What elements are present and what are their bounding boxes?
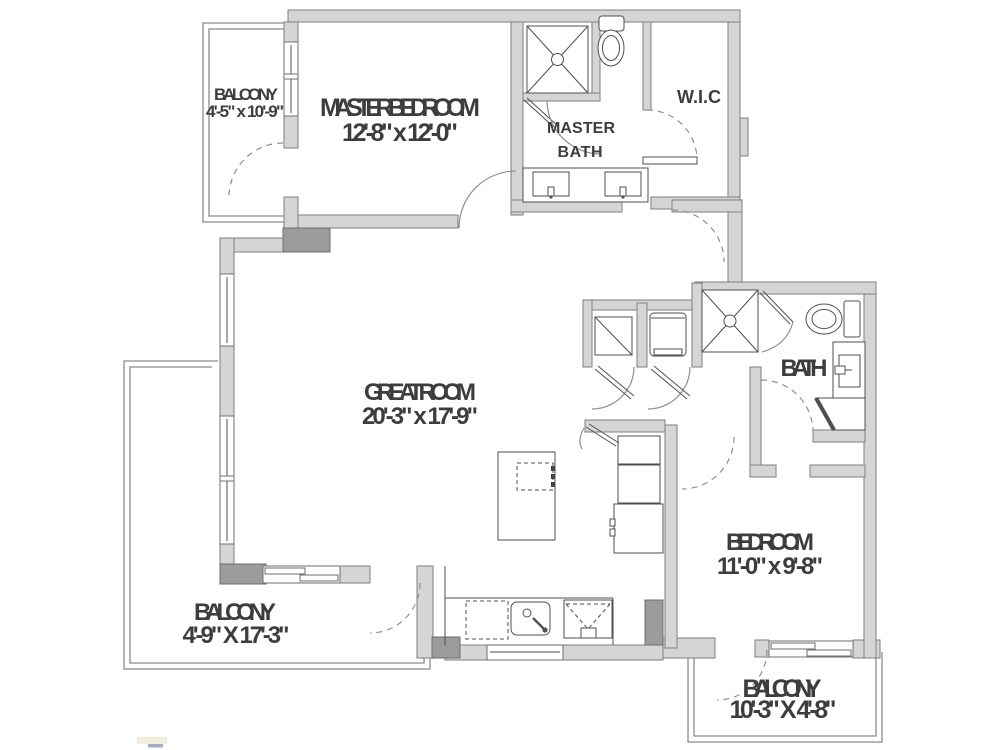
bath-shower-icon [702, 290, 758, 352]
bath-shower-door [760, 291, 793, 352]
bath-toilet-icon [806, 301, 860, 337]
great-room-label: GREAT ROOM [364, 379, 476, 406]
wic-door-swing [647, 110, 697, 160]
master-bedroom-dims: 12'-8" x 12'-0" [342, 119, 458, 147]
kitchen-sink-icon [511, 602, 550, 635]
bath-door-swing [761, 380, 813, 432]
entry-door-swing [672, 210, 724, 262]
great-room-slider-window [263, 566, 340, 583]
water-heater-icon [595, 317, 632, 355]
double-vanity-icon [523, 168, 648, 202]
master-bath-label-line1: MASTER [547, 120, 615, 137]
bath-label: BATH [781, 355, 828, 382]
bath-corner-counter [816, 398, 865, 430]
bedroom-label: BEDROOM [726, 529, 814, 556]
master-bedroom-balcony-window [284, 42, 298, 116]
balcony-top-left-outline [203, 23, 293, 222]
master-bath-label-line2: BATH [558, 144, 603, 161]
wic-label: W.I.C [677, 87, 721, 107]
range-icon [564, 600, 612, 638]
bedroom-dims: 11'-0" x 9'-8" [717, 553, 823, 580]
bedroom-door-swing [682, 437, 734, 489]
bedroom-slider-window [769, 641, 853, 657]
watermark [137, 737, 167, 748]
wic-partition [643, 157, 697, 164]
great-room-window-lower [220, 416, 234, 544]
pantry-cabinets [618, 436, 660, 503]
master-bath-fixtures [523, 16, 648, 202]
dishwasher-icon [466, 601, 508, 639]
great-room-window-upper [220, 274, 234, 346]
toilet-icon [598, 16, 624, 66]
great-room-balcony-door-swing [370, 583, 420, 633]
closet-door-left [592, 366, 634, 409]
refrigerator-icon [610, 504, 663, 553]
master-bedroom-label: MASTER BEDROOM [320, 94, 480, 122]
washer-icon [650, 313, 686, 356]
closet-door-right [648, 366, 690, 409]
kitchen-fixtures [445, 424, 663, 645]
floor-plan-page: BALCONY 4'-5" x 10'-9" MASTER BEDROOM 12… [0, 0, 1000, 750]
structural-columns [220, 228, 663, 658]
balcony-bottom-left-dims: 4'-9" X 17'-3" [183, 622, 290, 649]
balcony-top-left-door-swing [229, 143, 283, 197]
bath-vanity-icon [833, 342, 865, 399]
floor-plan-canvas: BALCONY 4'-5" x 10'-9" MASTER BEDROOM 12… [0, 0, 1000, 750]
kitchen-window [487, 645, 563, 660]
kitchen-island [498, 452, 555, 540]
master-bedroom-door-swing [459, 171, 516, 228]
balcony-bottom-right-dims: 10'-3" X 4'-8" [730, 696, 837, 724]
great-room-dims: 20'-3" x 17'-9" [362, 403, 478, 430]
balcony-top-left-dims: 4'-5" x 10'-9" [206, 102, 284, 121]
shower-icon [527, 26, 588, 93]
